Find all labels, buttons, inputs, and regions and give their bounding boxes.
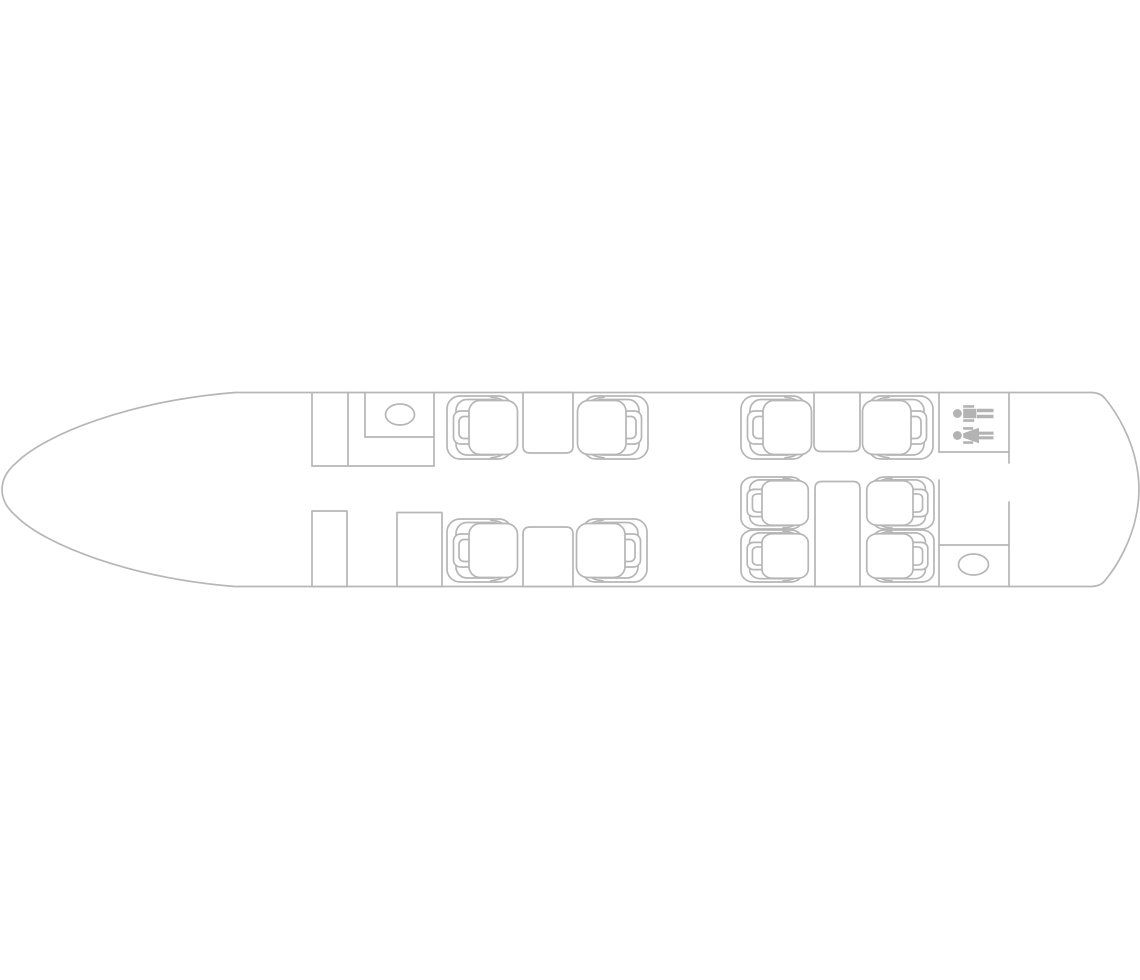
- table-forward-lower: [523, 527, 573, 587]
- forward-closet-left: [312, 511, 347, 587]
- forward-closet-right: [397, 513, 442, 587]
- seat-conference-left-1: [741, 477, 808, 529]
- aft-lavatory-sink: [959, 554, 989, 575]
- seat-forward-upper-left: [447, 396, 518, 459]
- floorplan-canvas: [0, 0, 1140, 980]
- conference-table: [815, 482, 860, 587]
- seat-conference-right-2: [867, 530, 934, 582]
- galley-sink: [386, 404, 415, 425]
- seat-conference-left-2: [741, 530, 808, 582]
- seat-forward-lower-left: [447, 519, 518, 582]
- seat-aft-upper-left: [741, 396, 812, 459]
- table-aft-upper: [814, 393, 860, 452]
- seat-aft-upper-right: [863, 396, 934, 459]
- aircraft-floorplan: [0, 0, 1140, 980]
- seat-forward-upper-right: [578, 396, 649, 459]
- seat-forward-lower-right: [577, 519, 648, 582]
- table-forward-upper: [523, 393, 573, 454]
- seat-conference-right-1: [867, 477, 934, 529]
